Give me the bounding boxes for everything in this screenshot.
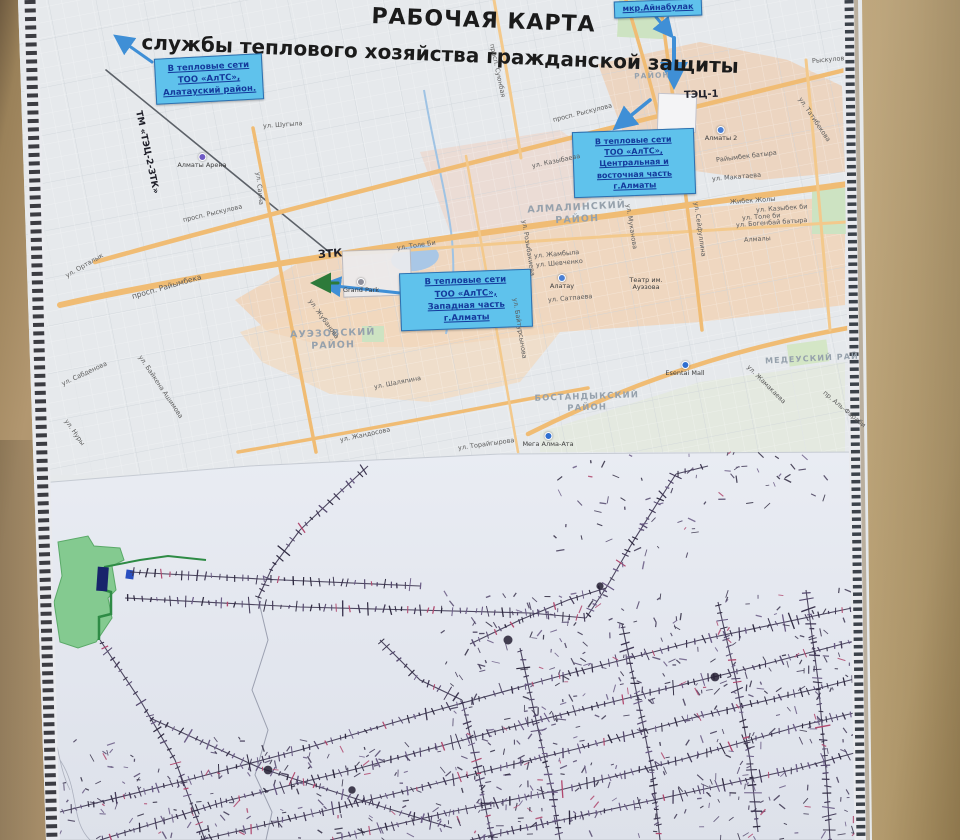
map-graphic <box>0 0 960 840</box>
poster: РАБОЧАЯ КАРТА службы теплового хозяйства… <box>0 0 960 840</box>
photo-of-wall-map: РАБОЧАЯ КАРТА службы теплового хозяйства… <box>0 0 960 840</box>
